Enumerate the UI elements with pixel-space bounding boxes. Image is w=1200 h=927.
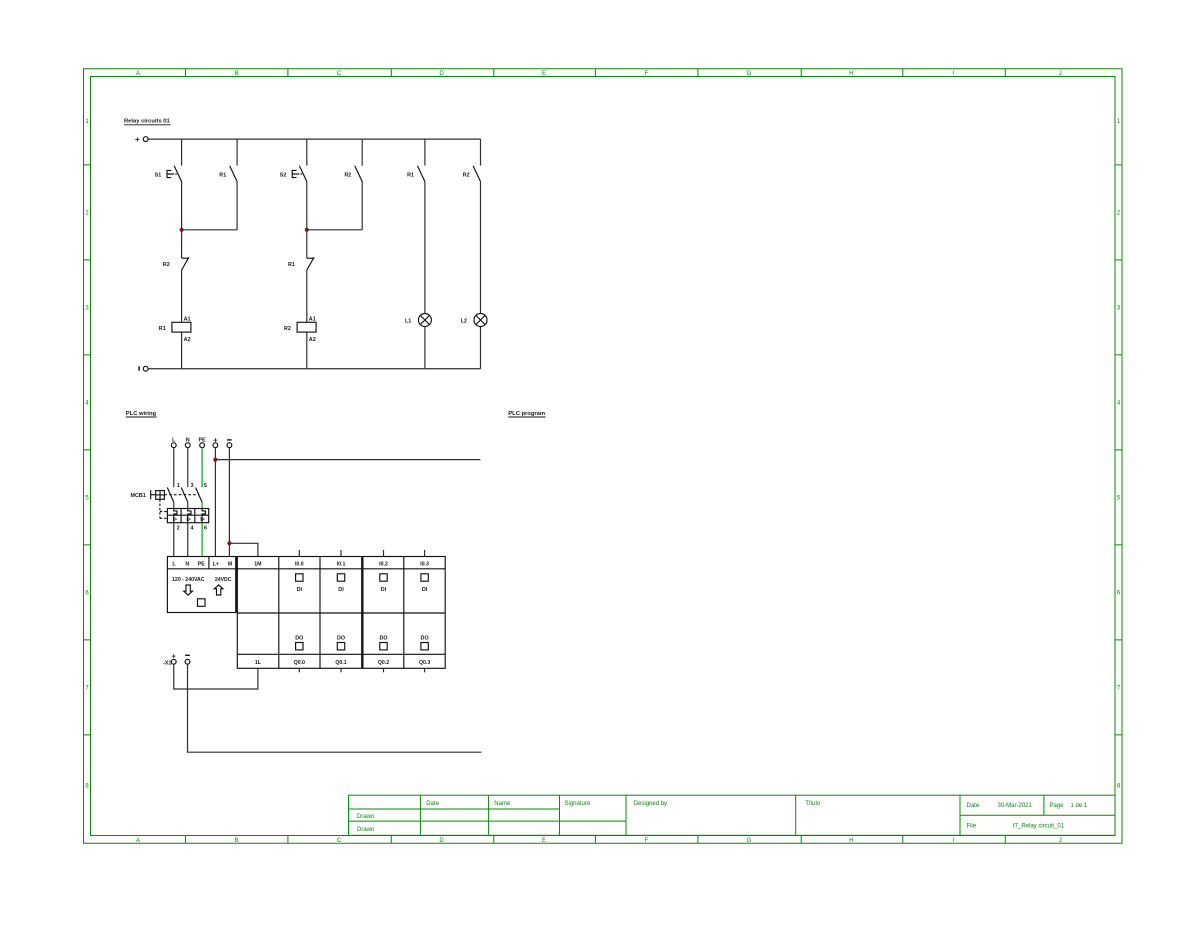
svg-text:Page: Page	[1050, 803, 1065, 809]
svg-text:C: C	[337, 838, 342, 844]
svg-text:R2: R2	[463, 172, 470, 178]
svg-text:J: J	[1059, 838, 1062, 844]
svg-text:3: 3	[191, 483, 194, 489]
svg-text:-X1: -X1	[163, 660, 171, 666]
svg-text:Q0.3: Q0.3	[419, 660, 430, 666]
svg-text:Name: Name	[494, 801, 511, 807]
svg-text:Relay circuits 01: Relay circuits 01	[124, 119, 171, 125]
svg-text:I>: I>	[200, 517, 204, 523]
svg-text:1M: 1M	[254, 562, 261, 568]
svg-text:Título: Título	[805, 801, 821, 807]
svg-text:1 de 1: 1 de 1	[1071, 803, 1088, 809]
svg-text:I0.3: I0.3	[420, 562, 429, 568]
svg-text:2: 2	[177, 526, 180, 532]
svg-text:R2: R2	[344, 172, 351, 178]
svg-text:A1: A1	[309, 316, 316, 322]
svg-text:A2: A2	[184, 337, 191, 343]
svg-text:B: B	[235, 71, 239, 77]
svg-text:C: C	[337, 71, 342, 77]
svg-text:30-Mar-2021: 30-Mar-2021	[998, 803, 1033, 809]
svg-text:+: +	[135, 135, 140, 144]
svg-text:Drawn: Drawn	[357, 827, 374, 833]
svg-text:R1: R1	[288, 262, 295, 268]
svg-text:File: File	[967, 823, 977, 829]
svg-text:E: E	[542, 838, 546, 844]
svg-text:DI: DI	[338, 587, 344, 593]
svg-text:24VDC: 24VDC	[215, 577, 232, 583]
svg-text:H: H	[849, 71, 853, 77]
svg-text:DI: DI	[297, 587, 303, 593]
svg-text:Date: Date	[967, 803, 980, 809]
svg-text:Q0.2: Q0.2	[378, 660, 389, 666]
svg-text:D: D	[439, 71, 444, 77]
svg-text:1L: 1L	[255, 660, 262, 666]
svg-text:R2: R2	[163, 262, 170, 268]
svg-text:S2: S2	[280, 172, 287, 178]
svg-text:6: 6	[204, 526, 207, 532]
svg-text:R1: R1	[159, 326, 166, 332]
svg-text:N: N	[185, 562, 189, 568]
svg-text:F: F	[645, 838, 649, 844]
svg-text:L2: L2	[461, 319, 467, 325]
svg-text:R1: R1	[219, 172, 226, 178]
svg-text:G: G	[747, 838, 752, 844]
svg-text:1: 1	[177, 483, 180, 489]
svg-text:A: A	[136, 71, 140, 77]
svg-text:I>: I>	[186, 517, 190, 523]
svg-text:L+: L+	[213, 562, 219, 568]
svg-text:R2: R2	[284, 326, 291, 332]
svg-text:PLC wiring: PLC wiring	[126, 411, 157, 417]
svg-text:E: E	[542, 71, 546, 77]
svg-text:S1: S1	[155, 172, 162, 178]
svg-text:PE: PE	[198, 562, 205, 568]
svg-text:Q0.1: Q0.1	[335, 660, 346, 666]
svg-text:G: G	[747, 71, 752, 77]
svg-text:f7_Relay circuit_01: f7_Relay circuit_01	[1013, 823, 1065, 829]
svg-text:I0.1: I0.1	[337, 562, 346, 568]
svg-text:Designed by: Designed by	[634, 801, 667, 807]
svg-text:PLC program: PLC program	[508, 411, 545, 417]
svg-text:DO: DO	[421, 636, 429, 642]
svg-text:L1: L1	[405, 319, 411, 325]
svg-text:I>: I>	[173, 517, 177, 523]
svg-text:120 - 240VAC: 120 - 240VAC	[172, 577, 205, 583]
svg-text:A1: A1	[184, 316, 191, 322]
svg-text:B: B	[235, 838, 239, 844]
svg-text:DO: DO	[295, 636, 303, 642]
svg-text:DO: DO	[379, 636, 387, 642]
svg-text:J: J	[1059, 71, 1062, 77]
svg-text:4: 4	[191, 526, 194, 532]
svg-text:A2: A2	[309, 337, 316, 343]
svg-text:R1: R1	[407, 172, 414, 178]
svg-text:A: A	[136, 838, 140, 844]
svg-text:F: F	[645, 71, 649, 77]
svg-text:DO: DO	[337, 636, 345, 642]
svg-text:MCB1: MCB1	[131, 493, 146, 499]
svg-text:DI: DI	[422, 587, 428, 593]
svg-text:Signature: Signature	[565, 801, 591, 807]
svg-text:Date: Date	[426, 801, 439, 807]
svg-text:Q0.0: Q0.0	[294, 660, 305, 666]
svg-text:M: M	[228, 562, 232, 568]
svg-text:5: 5	[204, 483, 207, 489]
svg-text:D: D	[439, 838, 444, 844]
svg-text:H: H	[849, 838, 853, 844]
svg-text:I0.0: I0.0	[295, 562, 304, 568]
svg-text:Drawn: Drawn	[357, 814, 374, 820]
svg-text:DI: DI	[381, 587, 387, 593]
svg-text:I0.2: I0.2	[379, 562, 388, 568]
